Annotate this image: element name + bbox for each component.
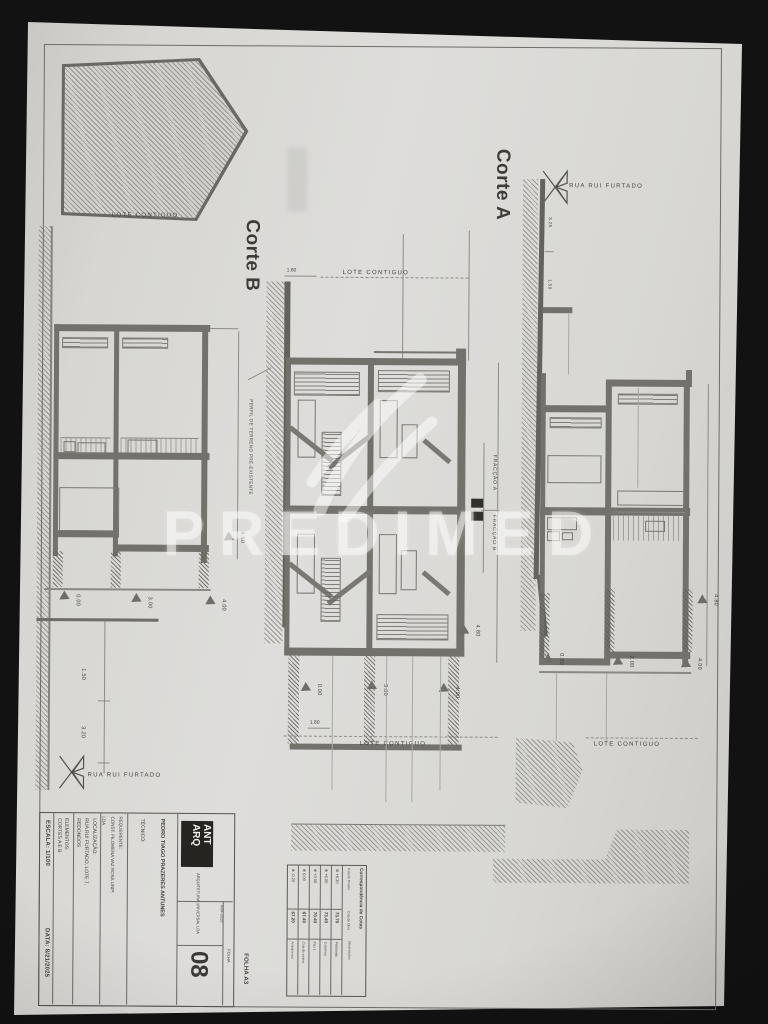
corte-c-dim-tick-2 — [98, 762, 110, 763]
title-block-tecnico-label: TÉCNICO: — [139, 819, 145, 843]
corte-b-foundation-1 — [288, 656, 300, 744]
title-block-localizacao-label: LOCALIZAÇÃO: — [91, 818, 97, 854]
corte-a-roof-left — [541, 405, 611, 412]
corte-a-level-0: 0.00 — [558, 653, 564, 665]
corte-b-foundation-2 — [364, 656, 376, 744]
corte-b-dim-top: 1.80 — [287, 268, 297, 274]
windmill-symbol-icon — [57, 754, 85, 790]
title-block-data: DATA: 8/21/2025 — [43, 928, 49, 977]
antarq-logo: ANT ARQ — [181, 821, 213, 867]
antarq-logo-line2: ARQ — [191, 824, 202, 846]
corte-a-street-label: RUA RUI FURTADO — [569, 183, 643, 189]
corte-c-window-opening — [127, 440, 157, 454]
corte-b-lote-contiguo-top: LOTE CONTIGUO — [343, 270, 410, 276]
corte-c-level-0: 0.00 — [75, 594, 81, 606]
cotas-row-obs: Cota de soleira — [301, 942, 305, 963]
corte-b-top-dim-line — [285, 275, 317, 276]
corte-c-window-band-2 — [122, 338, 168, 349]
windmill-symbol-icon — [541, 169, 569, 205]
corte-a-foundation-2 — [604, 588, 614, 651]
corte-c-fixture — [63, 441, 75, 452]
predimed-watermark: PREDIMED — [92, 498, 678, 570]
corte-c-roof-extension-line — [210, 328, 238, 329]
corte-a-foundation-1 — [539, 593, 549, 658]
corte-b-level-2: 4.00 — [454, 687, 460, 699]
corte-b-terrain-hatch — [264, 281, 284, 643]
cotas-row-cota: +6.00 — [324, 869, 329, 884]
corte-b-lower-right-stair-band — [376, 614, 448, 640]
corte-b-dim-bottom: 1.80 — [310, 720, 320, 726]
title-block-requerente-line2: LDA — [101, 816, 106, 825]
corte-a-title: Corte A — [491, 149, 513, 221]
corte-c-street-label: RUA RUI FURTADO — [87, 772, 161, 778]
corte-c-level-2: 4.00 — [221, 599, 227, 611]
cotas-row-obs: Arranjos ext. — [290, 942, 294, 960]
corte-b-bottom-dim-line — [308, 728, 330, 729]
cotas-row-cota: +6.30 — [335, 869, 340, 884]
corte-c-dim-150: 1.50 — [80, 668, 86, 680]
cotas-row-cota: -0.20 — [291, 869, 296, 883]
cotas-row-valor: 67.20 — [291, 912, 296, 923]
corte-a-parapet — [686, 370, 692, 382]
antarq-logo-line1: ANT — [201, 824, 212, 845]
cotas-row-valor: 67.40 — [302, 912, 307, 923]
title-block-requerente-label: REQUERENTE: — [118, 816, 123, 849]
photo-of-architectural-sheet: Corte C LOTE CONTIGUO 0.00 3.00 4.00 — [0, 0, 768, 1024]
cotas-row-obs: Piso 1 — [312, 942, 316, 951]
title-block-escala: ESCALA: 1/100 — [44, 820, 50, 866]
cotas-row-valor: 73.70 — [335, 912, 340, 923]
corte-a-room-outline — [547, 455, 601, 483]
corte-c-roof-slab — [54, 324, 210, 332]
corte-a-level-roof: 4.80 — [713, 594, 719, 606]
corte-b-foundation-3 — [448, 657, 460, 745]
corte-a-level-1: 2.00 — [628, 656, 634, 668]
corte-b-lote-contiguo-bottom: LOTE CONTIGUO — [360, 741, 427, 747]
corte-b-fraccao-a-label: FRACÇÃO A — [491, 455, 497, 491]
corte-c-bathtub — [77, 442, 105, 454]
corte-b-ground-band — [291, 824, 505, 852]
corte-c-dim-tick-1 — [98, 700, 110, 701]
corte-c-level-1: 3.00 — [147, 597, 153, 609]
title-block-elementos-label: ELEMENTOS: — [63, 818, 69, 850]
cotas-row-obs: Platibanda — [334, 942, 338, 957]
cotas-col-header-valor: Cota de Obra — [347, 911, 351, 930]
corte-c-window-band-1 — [62, 337, 108, 348]
cotas-row-obs: Cobertura — [323, 942, 327, 956]
title-block-localizacao-line1: RUA RUI FURTADO, LOTE 7, — [83, 818, 89, 885]
corte-b-level-0: 0.00 — [316, 684, 322, 696]
title-block-tecnico-value: PEDRO TIAGO PRAZERES ANTUNES — [159, 819, 166, 917]
corte-a-street-tick-1 — [545, 251, 554, 252]
cotas-col-header-cota: Cota do Projeto — [347, 868, 351, 890]
corte-a-street-dim-1: 3.25 — [548, 217, 553, 227]
cotas-row-cota: +3.00 — [313, 869, 318, 884]
corte-a-window-band-right — [618, 394, 678, 405]
corte-a-street-canopy — [542, 307, 572, 313]
title-block-folha-label: FOLHA — [226, 949, 231, 962]
title-block-requerente-line1: CONST. FILOMENA VAZ ROSA UNIP. — [110, 816, 115, 893]
cotas-col-header-obs: Observações — [347, 941, 351, 960]
corte-b-title: Corte B — [240, 219, 262, 291]
corte-a-window-band-left — [550, 417, 602, 428]
title-block-logo-subtext: ARQUITETURA UNIVERSAL LDA — [196, 873, 201, 934]
cotas-row-valor: 73.40 — [324, 912, 329, 923]
corte-b-terrain-note: PERFIL DE TERRENO PRÉ-EXISTENTE — [248, 399, 254, 495]
sheet-format-label: FOLHA A3 — [242, 953, 248, 984]
cotas-table-title: Correspondência de Cotas — [358, 868, 363, 929]
corte-a-level-2: 4.00 — [696, 658, 702, 670]
title-block-localizacao-line2: REDONDOS — [75, 818, 81, 847]
corte-a-roof-right — [606, 379, 692, 387]
corte-a-foundation-3 — [682, 589, 692, 652]
corte-a-street-dim-2: 1.50 — [547, 279, 552, 289]
title-block-folha-numero: 08 — [184, 951, 212, 978]
corte-c-lote-contiguo-label: LOTE CONTIGUO — [112, 212, 179, 218]
corte-c-dim-320: 3.20 — [80, 726, 86, 738]
corte-b-level-roof: 4.80 — [474, 625, 480, 637]
title-block-elementos-value: CORTES A E B — [56, 818, 62, 852]
ink-bleed-smudge — [287, 148, 307, 212]
cotas-row-valor: 70.40 — [313, 912, 318, 923]
corte-a-lote-contiguo-label: LOTE CONTIGUO — [594, 741, 661, 747]
cotas-row-cota: 0.00 — [302, 869, 307, 881]
corte-c-foundation-1 — [53, 551, 63, 587]
